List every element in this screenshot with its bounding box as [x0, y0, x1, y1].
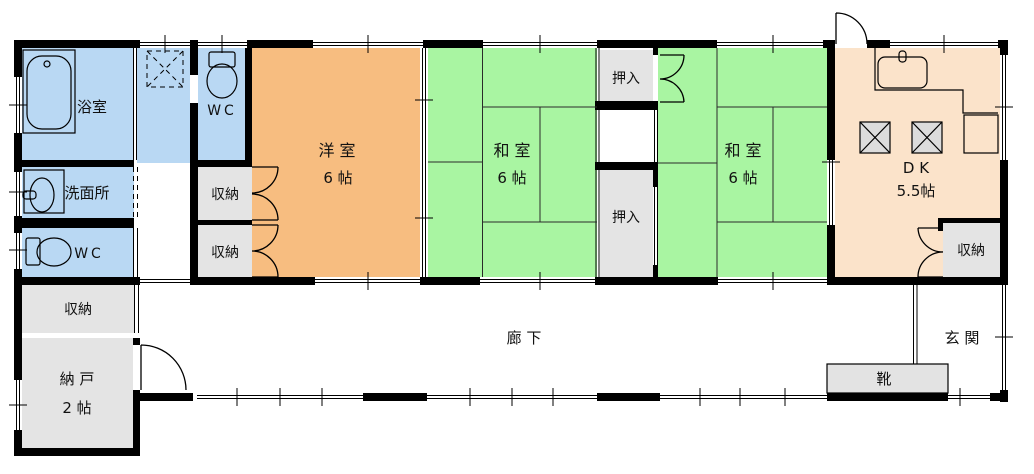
storage-west-label: 収納 [64, 302, 92, 318]
washroom-open-edge [134, 167, 138, 218]
wc-lower-edge [134, 228, 138, 277]
alcove-edge [655, 110, 658, 162]
wc-upper-label: WC [207, 103, 237, 119]
genkan-step-line [914, 285, 918, 364]
bathroom-label: 浴室 [77, 98, 107, 116]
western-room-floor [252, 48, 420, 277]
laundry-nook-floor [137, 48, 190, 163]
storage-hall-upper-label: 収納 [211, 187, 239, 203]
closet-lower-label: 押入 [612, 210, 640, 226]
japanese-room-2-label: 和 室 [724, 141, 761, 160]
dk-opening [830, 160, 833, 225]
japanese-room-1-label: 和 室 [493, 141, 530, 160]
bath-partition [134, 48, 137, 160]
washroom-label: 洗面所 [64, 184, 109, 202]
floor-plan: 浴室 洗面所 WC WC 洋 室 6 帖 和 室 6 帖 和 室 6 帖 D K… [0, 0, 1034, 474]
window [17, 233, 20, 269]
entrance-label: 玄 関 [945, 329, 980, 347]
storeroom-floor [22, 338, 133, 448]
japanese-room-1-size: 6 帖 [497, 169, 526, 187]
storage-hall-lower-label: 収納 [211, 245, 239, 261]
window [660, 396, 827, 399]
sliding-partition [423, 48, 426, 277]
hallway-opening [140, 280, 190, 283]
room-sliding-door [718, 280, 830, 283]
storeroom-size: 2 帖 [62, 399, 91, 417]
kitchen-back-door [836, 13, 867, 44]
dk-label: D K [903, 159, 930, 177]
entrance-door [948, 396, 990, 399]
western-room-label: 洋 室 [318, 141, 355, 160]
storeroom-label: 納 戸 [60, 370, 95, 388]
storeroom-door [141, 345, 186, 390]
storage-dk-label: 収納 [957, 243, 985, 259]
floor-plan-canvas: 浴室 洗面所 WC WC 洋 室 6 帖 和 室 6 帖 和 室 6 帖 D K… [0, 0, 1034, 474]
storage-west-edge [135, 285, 139, 333]
room-sliding-door [480, 280, 595, 283]
shoe-cabinet-label: 靴 [876, 370, 891, 388]
window [17, 172, 20, 216]
corridor-label: 廊 下 [507, 329, 542, 347]
window [717, 43, 823, 46]
closet-upper-label: 押入 [612, 71, 640, 87]
closet-sliding-door [655, 187, 658, 265]
western-room-size: 6 帖 [323, 169, 352, 187]
japanese-room-2-size: 6 帖 [728, 169, 757, 187]
wc-lower-label: WC [74, 246, 104, 262]
dk-size: 5.5帖 [897, 182, 936, 200]
